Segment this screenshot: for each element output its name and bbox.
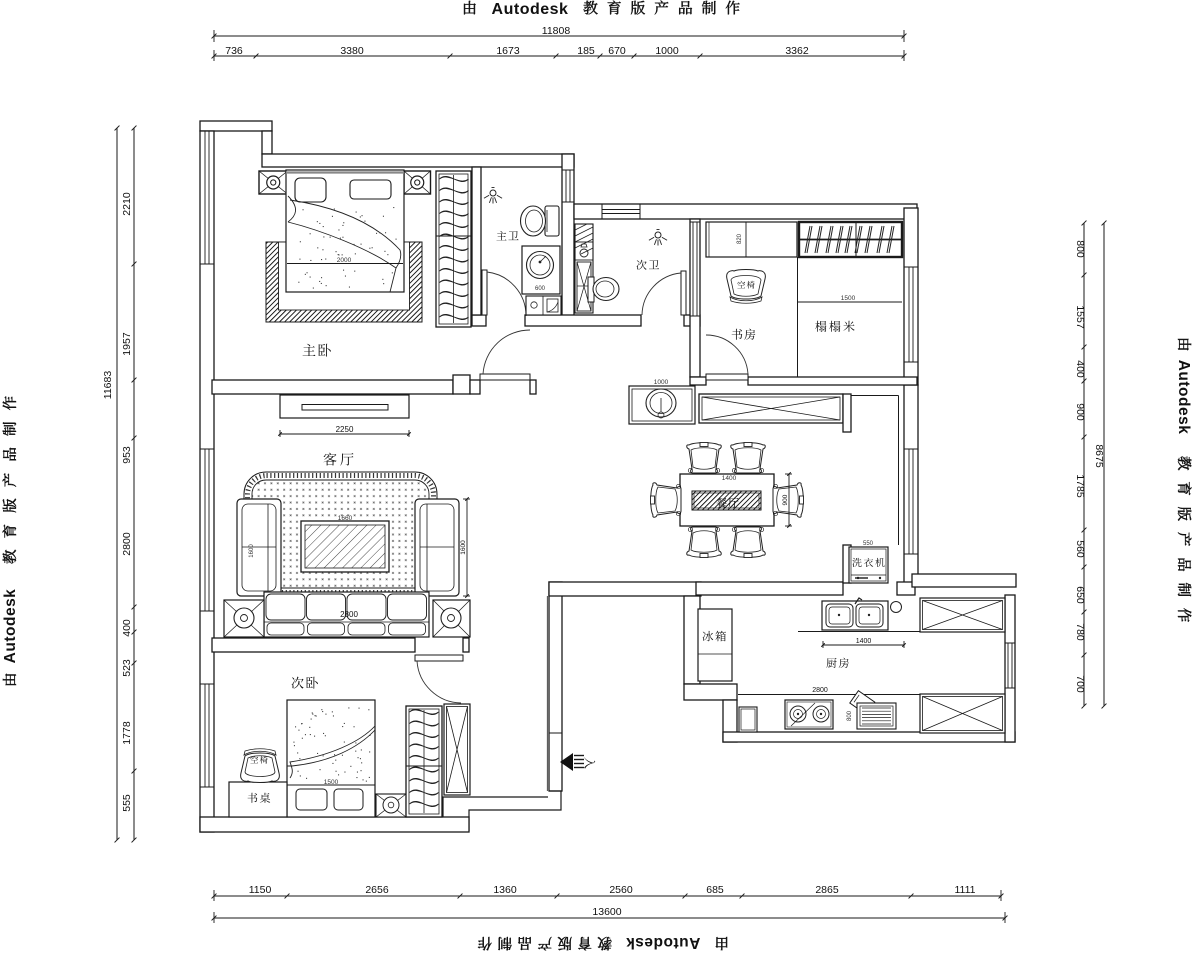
svg-text:Autodesk: Autodesk (626, 934, 701, 951)
svg-text:1400: 1400 (856, 638, 872, 645)
svg-text:11808: 11808 (542, 25, 571, 37)
svg-text:800: 800 (1074, 240, 1086, 258)
svg-text:736: 736 (225, 45, 243, 57)
svg-text:Autodesk: Autodesk (2, 589, 19, 664)
svg-text:1000: 1000 (655, 45, 679, 57)
svg-text:2800: 2800 (812, 687, 828, 694)
svg-text:1785: 1785 (1074, 474, 1086, 498)
svg-text:11683: 11683 (102, 371, 114, 400)
svg-text:1500: 1500 (841, 295, 856, 302)
svg-text:1000: 1000 (654, 379, 669, 386)
svg-text:2865: 2865 (815, 884, 839, 896)
svg-text:400: 400 (1074, 360, 1086, 378)
svg-text:3362: 3362 (785, 45, 809, 57)
svg-text:1360: 1360 (493, 884, 517, 896)
svg-text:1150: 1150 (249, 884, 272, 896)
svg-text:2210: 2210 (121, 192, 133, 216)
svg-text:900: 900 (782, 494, 789, 505)
svg-text:670: 670 (608, 45, 626, 57)
svg-text:820: 820 (737, 233, 743, 244)
svg-text:2560: 2560 (609, 884, 633, 896)
svg-text:1778: 1778 (121, 721, 133, 745)
svg-text:685: 685 (706, 884, 724, 896)
svg-text:1600: 1600 (249, 544, 255, 558)
svg-text:2000: 2000 (337, 257, 352, 264)
svg-text:523: 523 (121, 659, 133, 677)
svg-text:Autodesk: Autodesk (1175, 360, 1192, 435)
svg-text:2800: 2800 (121, 532, 133, 556)
svg-text:1673: 1673 (496, 45, 520, 57)
svg-text:600: 600 (535, 286, 546, 292)
svg-text:3380: 3380 (340, 45, 364, 57)
svg-text:700: 700 (1074, 675, 1086, 693)
svg-text:1400: 1400 (722, 475, 737, 482)
svg-text:8675: 8675 (1093, 444, 1105, 468)
svg-text:650: 650 (1074, 586, 1086, 604)
svg-text:900: 900 (1074, 403, 1086, 421)
svg-text:1557: 1557 (1074, 305, 1086, 329)
svg-text:780: 780 (1074, 623, 1086, 641)
svg-text:1957: 1957 (121, 332, 133, 356)
svg-text:2800: 2800 (340, 610, 358, 619)
svg-text:1111: 1111 (954, 884, 975, 896)
svg-text:2656: 2656 (365, 884, 389, 896)
svg-text:2250: 2250 (336, 425, 354, 434)
svg-text:560: 560 (1074, 540, 1086, 558)
svg-text:550: 550 (863, 541, 874, 547)
svg-text:185: 185 (577, 45, 595, 57)
svg-text:555: 555 (121, 794, 133, 812)
svg-text:400: 400 (121, 619, 133, 637)
svg-text:800: 800 (847, 710, 853, 721)
svg-text:1600: 1600 (460, 540, 467, 555)
svg-text:1500: 1500 (324, 779, 339, 786)
svg-text:Autodesk: Autodesk (492, 1, 569, 18)
svg-text:953: 953 (121, 446, 133, 464)
svg-text:13600: 13600 (592, 906, 621, 918)
